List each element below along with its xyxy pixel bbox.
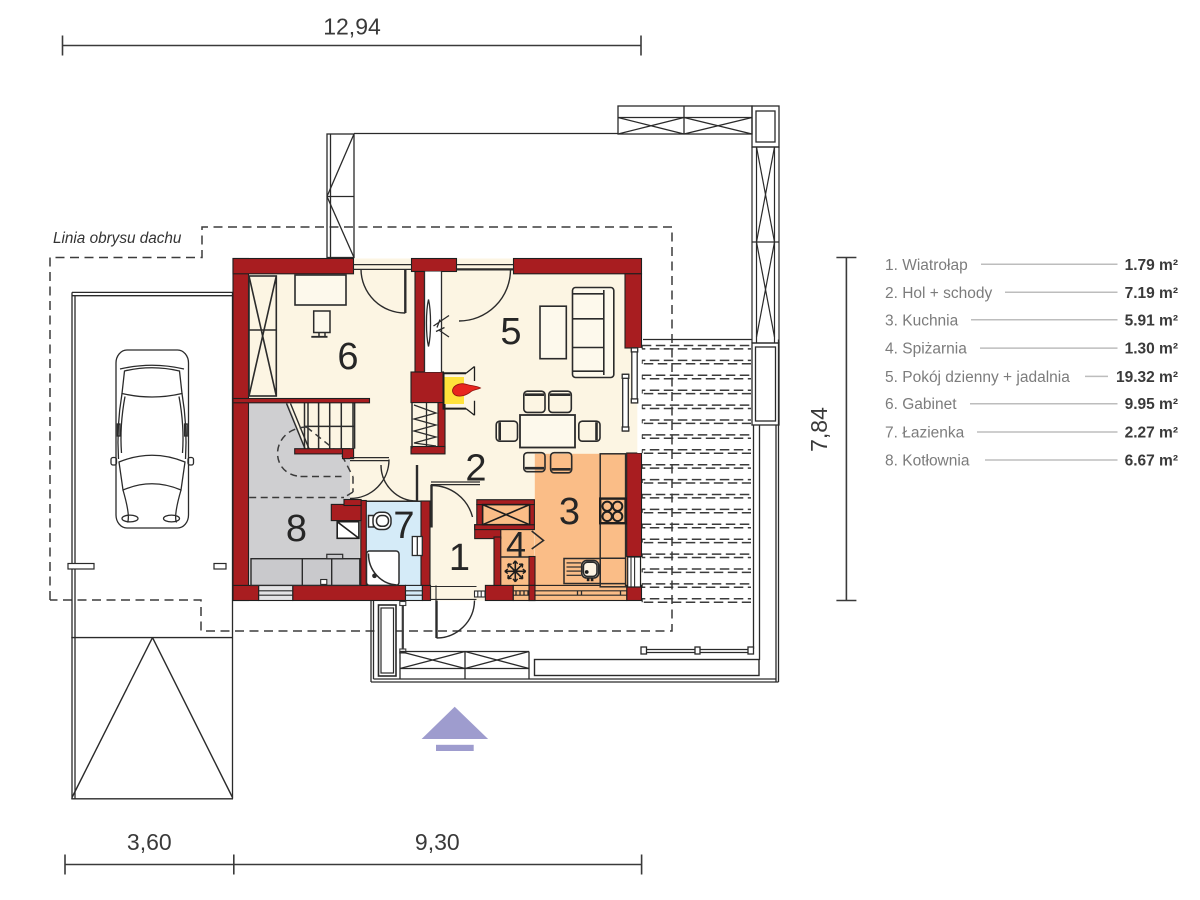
svg-text:7,84: 7,84 [806,407,832,452]
svg-text:19.32 m²: 19.32 m² [1116,369,1178,386]
svg-text:Linia obrysu dachu: Linia obrysu dachu [53,230,182,247]
svg-text:8: 8 [286,508,307,550]
svg-text:12,94: 12,94 [323,14,381,40]
svg-text:4: 4 [506,524,526,565]
svg-text:8. Kotłownia: 8. Kotłownia [885,453,970,470]
svg-text:7.19 m²: 7.19 m² [1125,285,1178,302]
svg-text:7. Łazienka: 7. Łazienka [885,425,965,442]
svg-text:2.27 m²: 2.27 m² [1125,425,1178,442]
svg-text:3: 3 [559,491,580,533]
svg-text:1: 1 [449,537,470,579]
svg-text:4. Spiżarnia: 4. Spiżarnia [885,341,967,358]
svg-text:5. Pokój dzienny + jadalnia: 5. Pokój dzienny + jadalnia [885,369,1070,386]
svg-text:5: 5 [500,311,521,353]
svg-text:1. Wiatrołap: 1. Wiatrołap [885,257,968,274]
svg-text:2: 2 [465,448,486,490]
svg-text:1.30 m²: 1.30 m² [1125,341,1178,358]
svg-text:6: 6 [337,336,358,378]
svg-text:9,30: 9,30 [415,829,460,855]
svg-text:2. Hol + schody: 2. Hol + schody [885,285,993,302]
svg-text:3. Kuchnia: 3. Kuchnia [885,312,959,329]
svg-text:6. Gabinet: 6. Gabinet [885,396,957,413]
svg-text:7: 7 [393,505,414,547]
svg-text:3,60: 3,60 [127,829,172,855]
svg-text:5.91 m²: 5.91 m² [1125,312,1178,329]
svg-text:9.95 m²: 9.95 m² [1125,396,1178,413]
svg-text:1.79 m²: 1.79 m² [1125,257,1178,274]
svg-text:6.67 m²: 6.67 m² [1125,453,1178,470]
